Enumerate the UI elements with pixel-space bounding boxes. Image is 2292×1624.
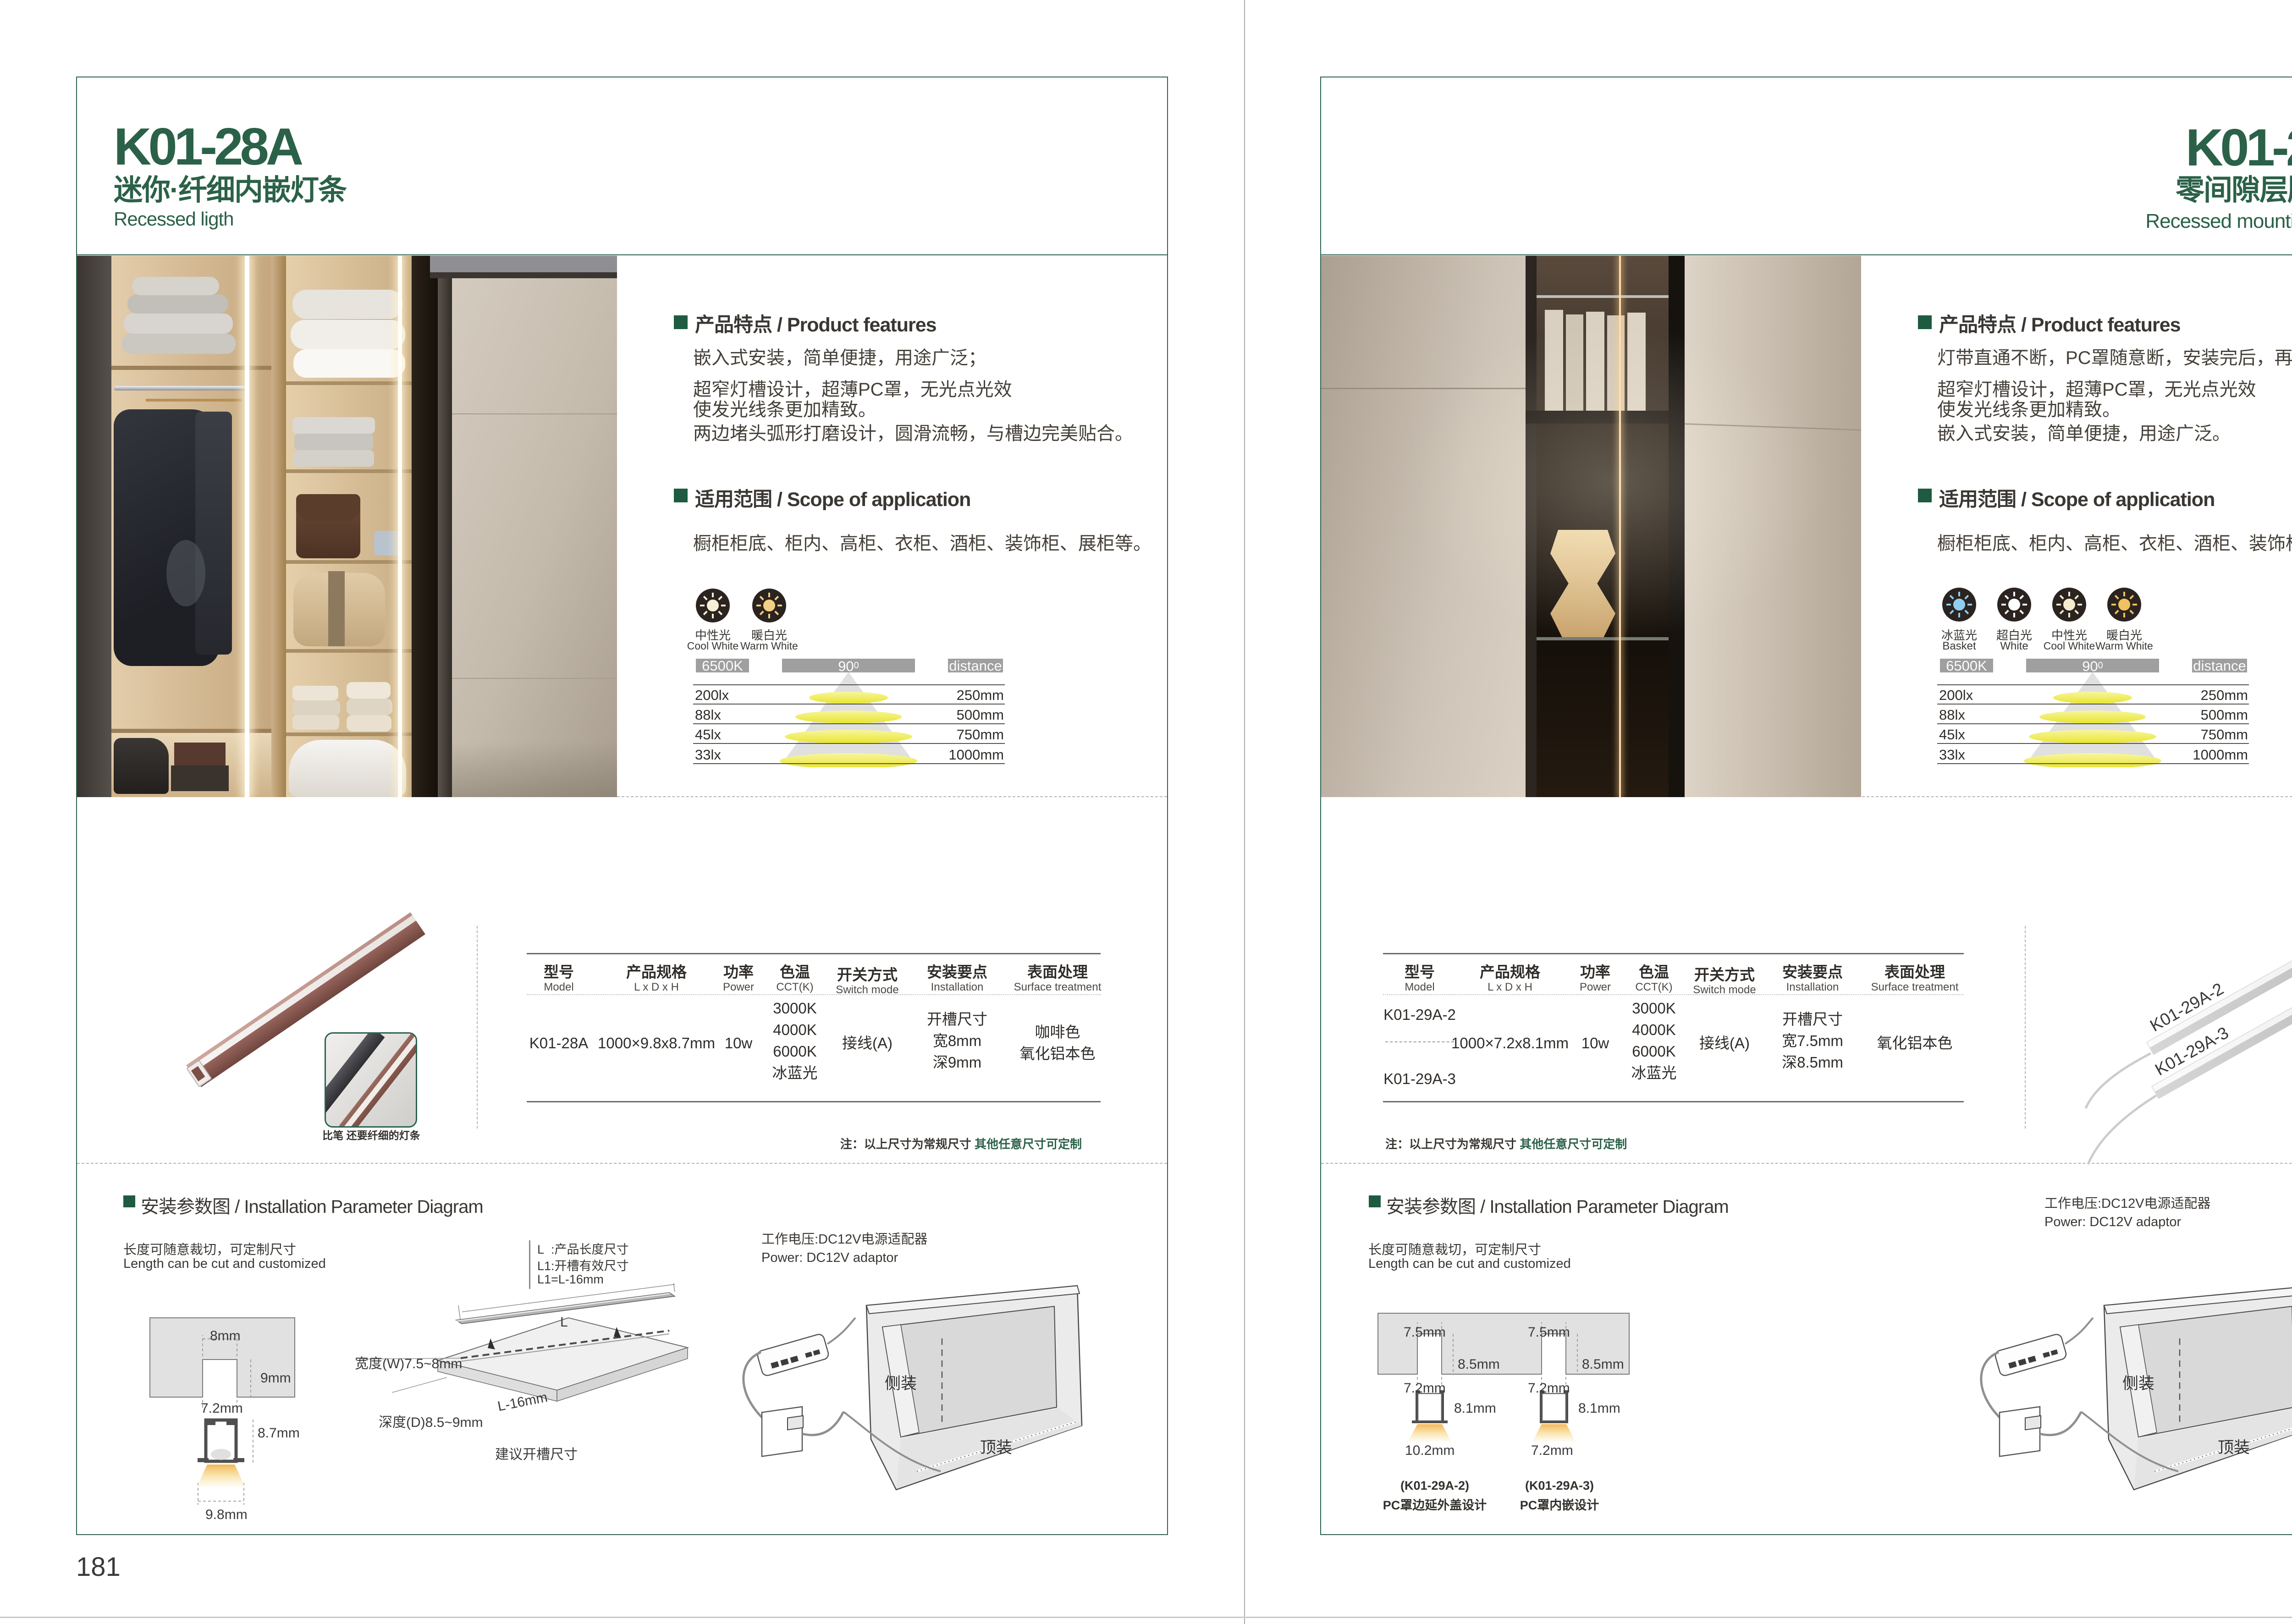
svg-text:侧装: 侧装 (2122, 1375, 2154, 1393)
svg-text:顶装: 顶装 (2218, 1439, 2250, 1457)
svg-text:侧装: 侧装 (885, 1375, 917, 1393)
svg-text:顶装: 顶装 (980, 1439, 1012, 1457)
